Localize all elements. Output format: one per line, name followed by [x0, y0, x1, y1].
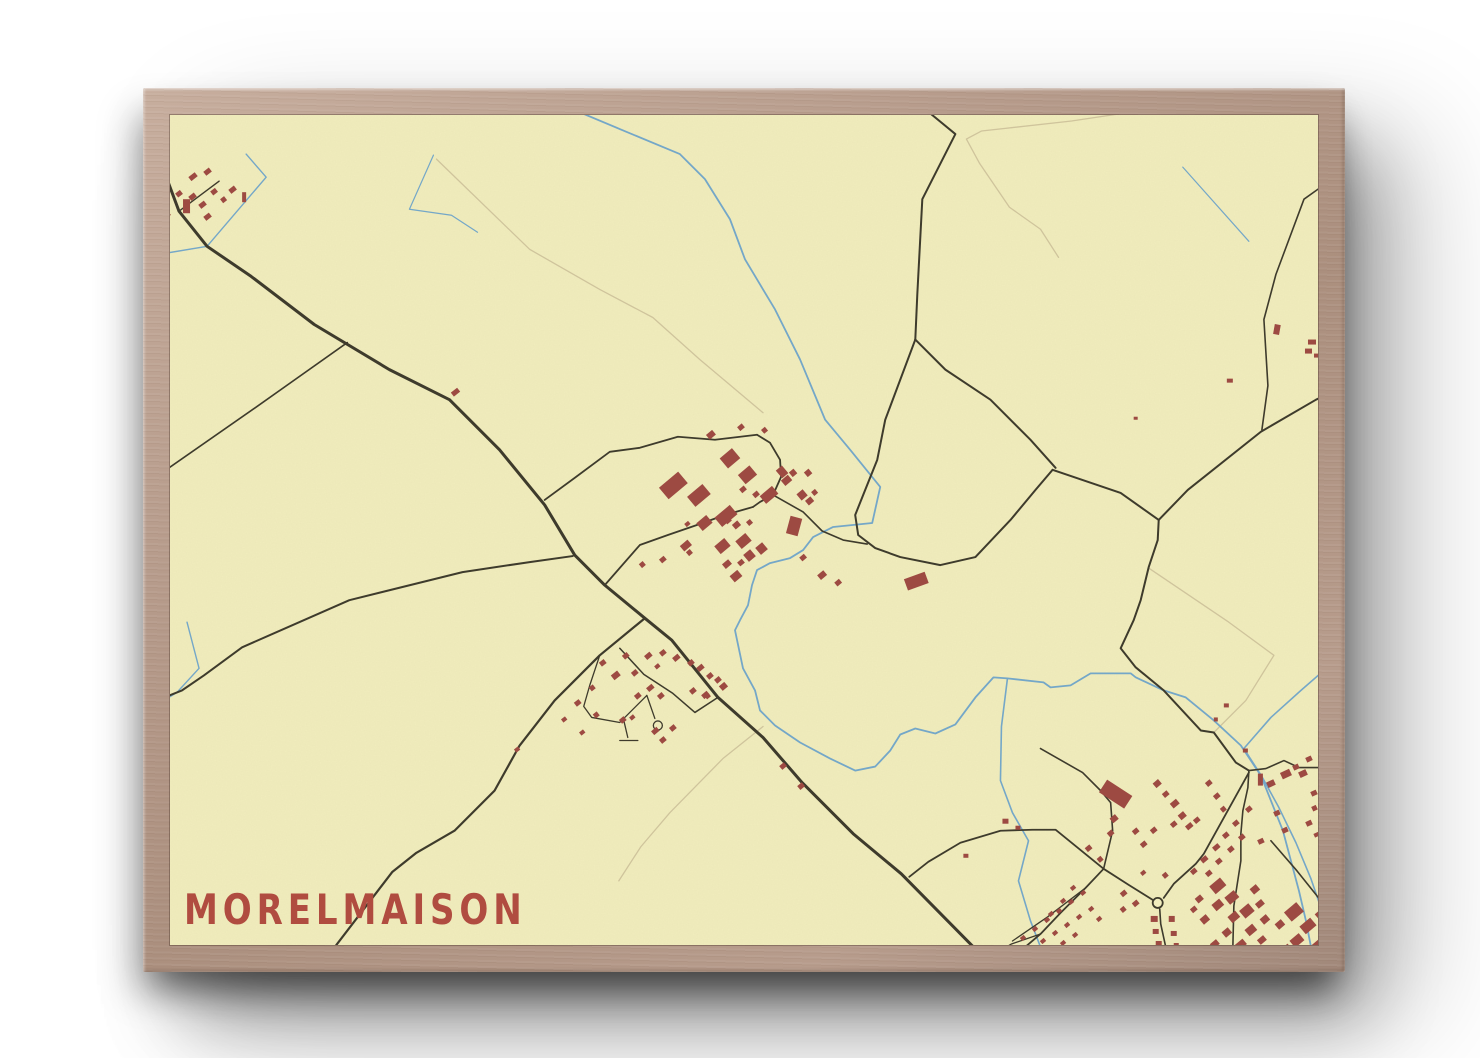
building	[1156, 941, 1162, 945]
building	[1308, 340, 1316, 345]
picture-frame: MORELMAISON	[143, 88, 1345, 972]
map-poster: MORELMAISON	[170, 115, 1318, 945]
building	[1243, 749, 1248, 753]
building	[1169, 916, 1175, 922]
roundabout	[1153, 898, 1163, 908]
building	[1214, 717, 1218, 721]
building	[242, 192, 246, 202]
building	[1258, 774, 1263, 786]
building	[1314, 354, 1318, 358]
building	[1151, 916, 1158, 922]
building	[1224, 703, 1229, 707]
building	[1002, 819, 1008, 824]
building	[1134, 417, 1138, 420]
building	[1153, 929, 1159, 934]
building	[1171, 931, 1177, 936]
paper-grain-texture	[170, 115, 1318, 945]
poster-title: MORELMAISON	[184, 885, 527, 934]
building	[183, 199, 190, 213]
building	[1305, 349, 1312, 354]
building	[1227, 379, 1233, 383]
map-canvas: MORELMAISON	[170, 115, 1318, 945]
building	[963, 854, 968, 858]
building	[1174, 943, 1179, 945]
building	[1015, 826, 1020, 830]
wall-background: MORELMAISON	[0, 0, 1480, 1058]
